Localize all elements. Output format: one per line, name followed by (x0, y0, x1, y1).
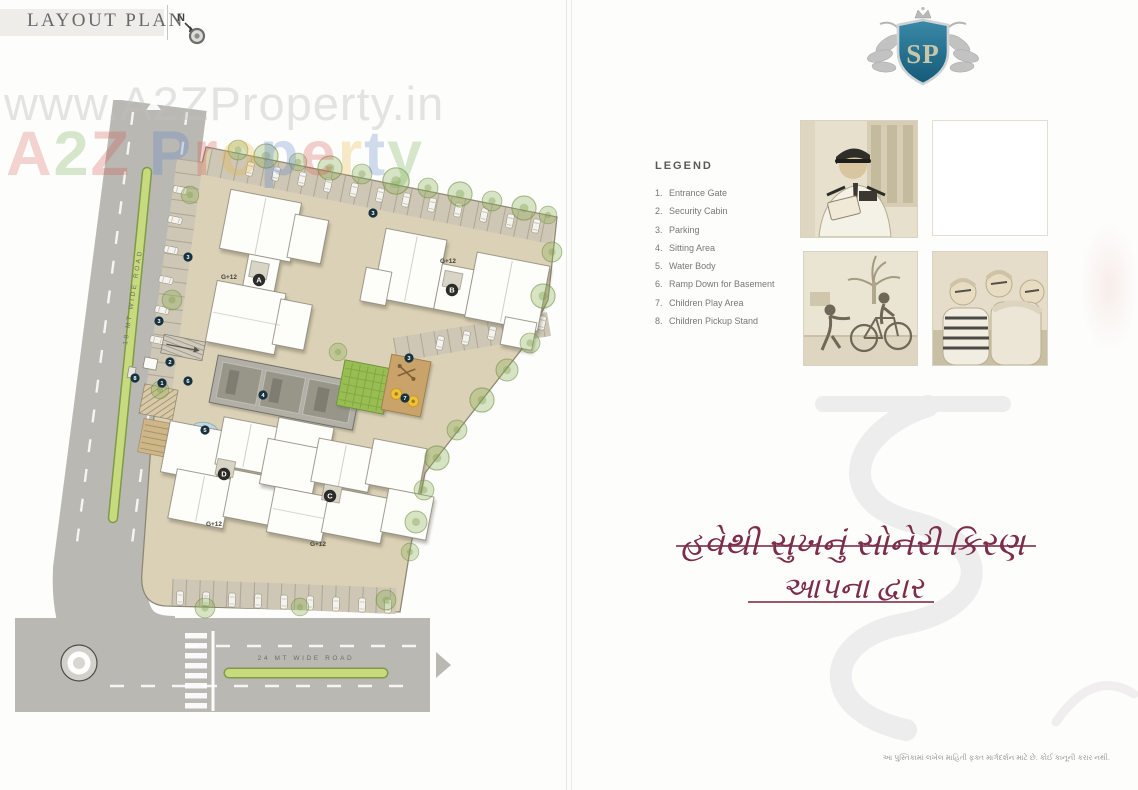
wm-letter: P (149, 118, 193, 190)
floors-label-d: G+12 (206, 521, 222, 528)
wm-letter: r (338, 118, 365, 190)
wm-letter: 2 (54, 118, 91, 190)
roundabout (61, 645, 97, 681)
floors-label-a: G+12 (221, 274, 237, 281)
disclaimer-text: આ પુસ્તિકામાં લખેલ માહિતી ફક્ત માર્ગદર્શ… (820, 753, 1110, 763)
north-label: N (177, 12, 185, 24)
marker-security-cabin: 2 (165, 357, 174, 366)
page-blush-decoration (1080, 222, 1138, 352)
legend-item: 5.Water Body (655, 257, 825, 275)
svg-text:C: C (327, 492, 333, 501)
marker-parking: 3 (154, 316, 163, 325)
legend-item: 7.Children Play Area (655, 294, 825, 312)
wm-letter: r (193, 118, 220, 190)
faded-swash-decoration (1048, 660, 1138, 730)
marker-parking: 3 (183, 252, 192, 261)
wm-letter: y (387, 118, 424, 190)
marker-pickup-stand: 8 (130, 373, 139, 382)
sp-crest-logo: SP (860, 6, 986, 92)
page-gutter-line (571, 0, 572, 790)
security-cabin (143, 357, 158, 370)
wm-letter: A (6, 118, 54, 190)
page-title: LAYOUT PLAN (27, 10, 185, 32)
road-arrow-east (436, 652, 451, 678)
legend-item: 6.Ramp Down for Basement (655, 275, 825, 293)
children-cycling-illustration (804, 252, 917, 365)
photo-security-guard (800, 120, 918, 238)
wm-letter: Z (91, 118, 131, 190)
wm-letter: o (220, 118, 260, 190)
svg-text:7: 7 (403, 396, 406, 402)
security-guard-illustration (801, 121, 917, 237)
north-compass-icon: N (168, 4, 212, 48)
badge-building-a: A (253, 274, 265, 286)
photo-senior-citizens (932, 251, 1048, 366)
marker-entrance-gate: 1 (157, 378, 166, 387)
road-24mt-label: 24 MT WIDE ROAD (258, 655, 355, 662)
svg-text:B: B (449, 286, 455, 295)
logo-initials: SP (906, 39, 940, 69)
wm-letter: t (364, 118, 387, 190)
floors-label-b: G+12 (440, 258, 456, 265)
page-gutter-line (566, 0, 567, 790)
badge-building-c: C (324, 490, 336, 502)
marker-parking: 3 (368, 208, 377, 217)
wm-letter: p (260, 118, 300, 190)
marker-ramp: 6 (183, 376, 192, 385)
tagline-line1: હવેથી સુખનું સોનેરી કિરણ (655, 527, 1050, 564)
marker-play-area: 7 (400, 393, 409, 402)
marker-parking: 3 (404, 353, 413, 362)
svg-text:D: D (221, 470, 227, 479)
marker-water-body: 5 (200, 425, 209, 434)
legend-item: 4.Sitting Area (655, 239, 825, 257)
photo-blank-frame (932, 120, 1048, 236)
tagline-line2: આપના દ્વાર (655, 572, 1050, 606)
brochure-page: { "page": { "title": "LAYOUT PLAN", "nor… (0, 0, 1138, 790)
svg-text:A: A (256, 276, 262, 285)
floors-label-c: G+12 (310, 541, 326, 548)
site-plan: 18 MT WIDE ROAD 24 MT WIDE ROAD (0, 100, 565, 740)
legend-item: 8.Children Pickup Stand (655, 312, 825, 330)
wm-letter: e (301, 118, 338, 190)
watermark-brand: A2ZProperty (6, 118, 424, 190)
senior-citizens-illustration (933, 252, 1047, 365)
tagline: હવેથી સુખનું સોનેરી કિરણ આપના દ્વાર (655, 527, 1050, 606)
svg-text:2: 2 (168, 360, 171, 366)
badge-building-d: D (218, 468, 230, 480)
photo-children-cycling (803, 251, 918, 366)
badge-building-b: B (446, 284, 458, 296)
marker-sitting-area: 4 (258, 390, 267, 399)
crest-crown (915, 7, 931, 18)
